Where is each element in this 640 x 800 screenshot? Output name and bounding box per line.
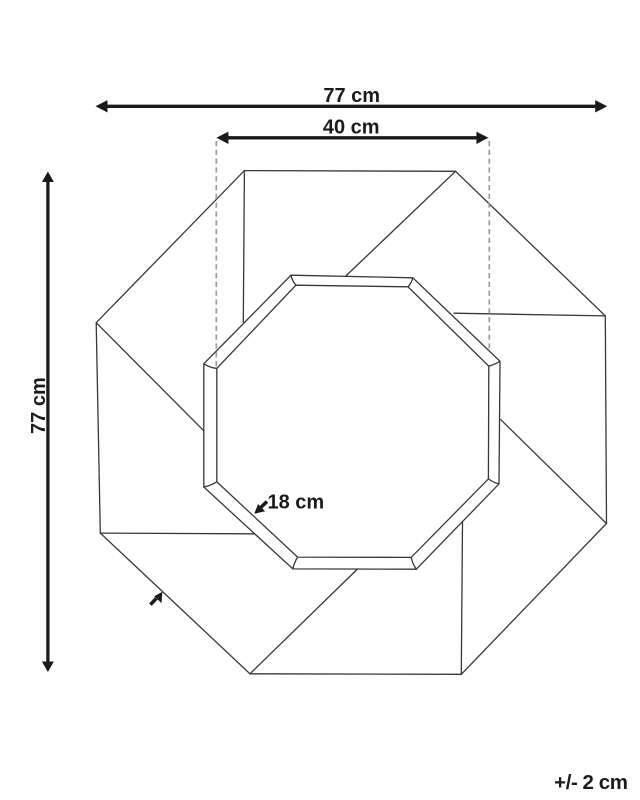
svg-text:77 cm: 77 cm <box>28 377 50 434</box>
svg-text:40 cm: 40 cm <box>323 116 380 138</box>
svg-text:18 cm: 18 cm <box>268 492 325 514</box>
svg-text:+/- 2 cm: +/- 2 cm <box>554 771 627 794</box>
svg-text:77 cm: 77 cm <box>323 85 380 107</box>
